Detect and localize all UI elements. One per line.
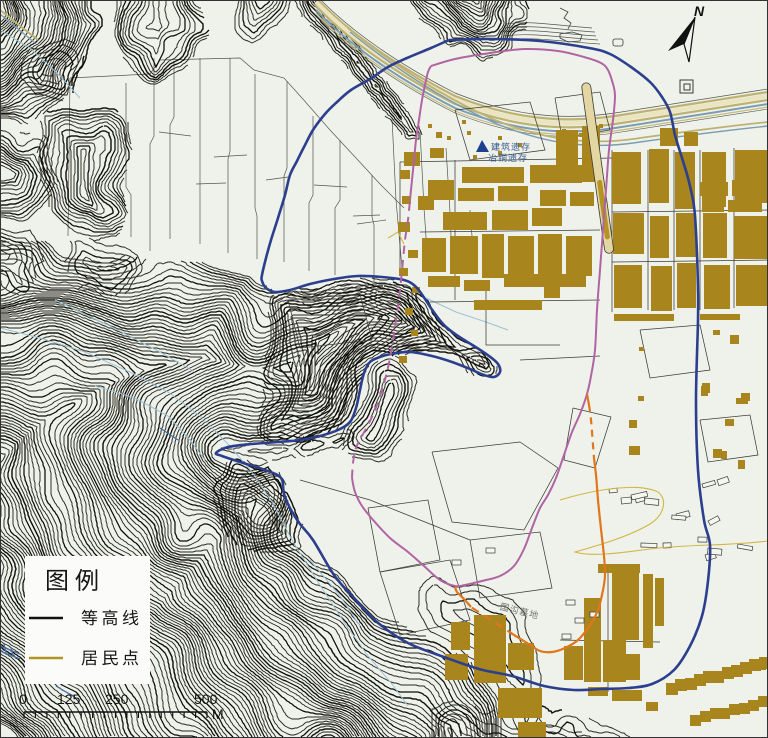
svg-text:125: 125 — [57, 691, 81, 707]
svg-text:500: 500 — [194, 691, 218, 707]
svg-text:N: N — [694, 3, 705, 19]
svg-text:M: M — [212, 706, 224, 722]
svg-text:0: 0 — [19, 691, 27, 707]
svg-text:250: 250 — [105, 691, 129, 707]
